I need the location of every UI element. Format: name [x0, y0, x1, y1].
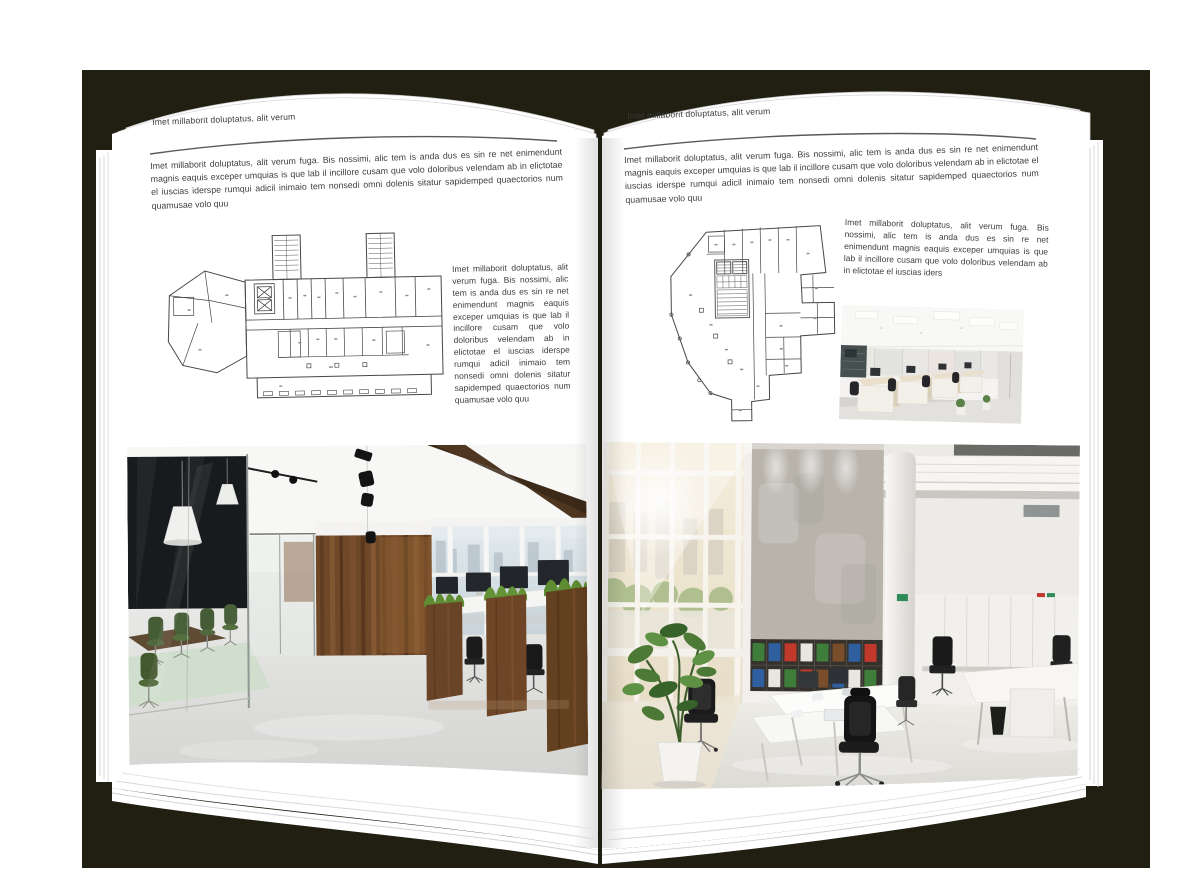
air-vent — [1023, 505, 1059, 517]
exit-sign — [897, 594, 908, 601]
right-floor-plan — [648, 212, 843, 427]
left-floor-plan — [156, 224, 452, 418]
right-office-photo — [602, 442, 1080, 792]
glass-partition — [249, 506, 316, 656]
concrete-wall — [751, 442, 884, 640]
magazine-spread-mockup: Imet millaborit doluptatus, alit verum I… — [0, 0, 1200, 891]
right-side-column: Imet millaborit doluptatus, alit verum f… — [843, 217, 1049, 282]
left-side-column: Imet millaborit doluptatus, alit verum f… — [452, 262, 571, 407]
right-small-office-photo — [839, 305, 1024, 424]
left-office-photo — [127, 444, 588, 779]
page-stack-left — [96, 150, 114, 782]
white-pot — [658, 742, 702, 782]
tall-window-wall — [602, 442, 754, 703]
column — [884, 452, 916, 696]
